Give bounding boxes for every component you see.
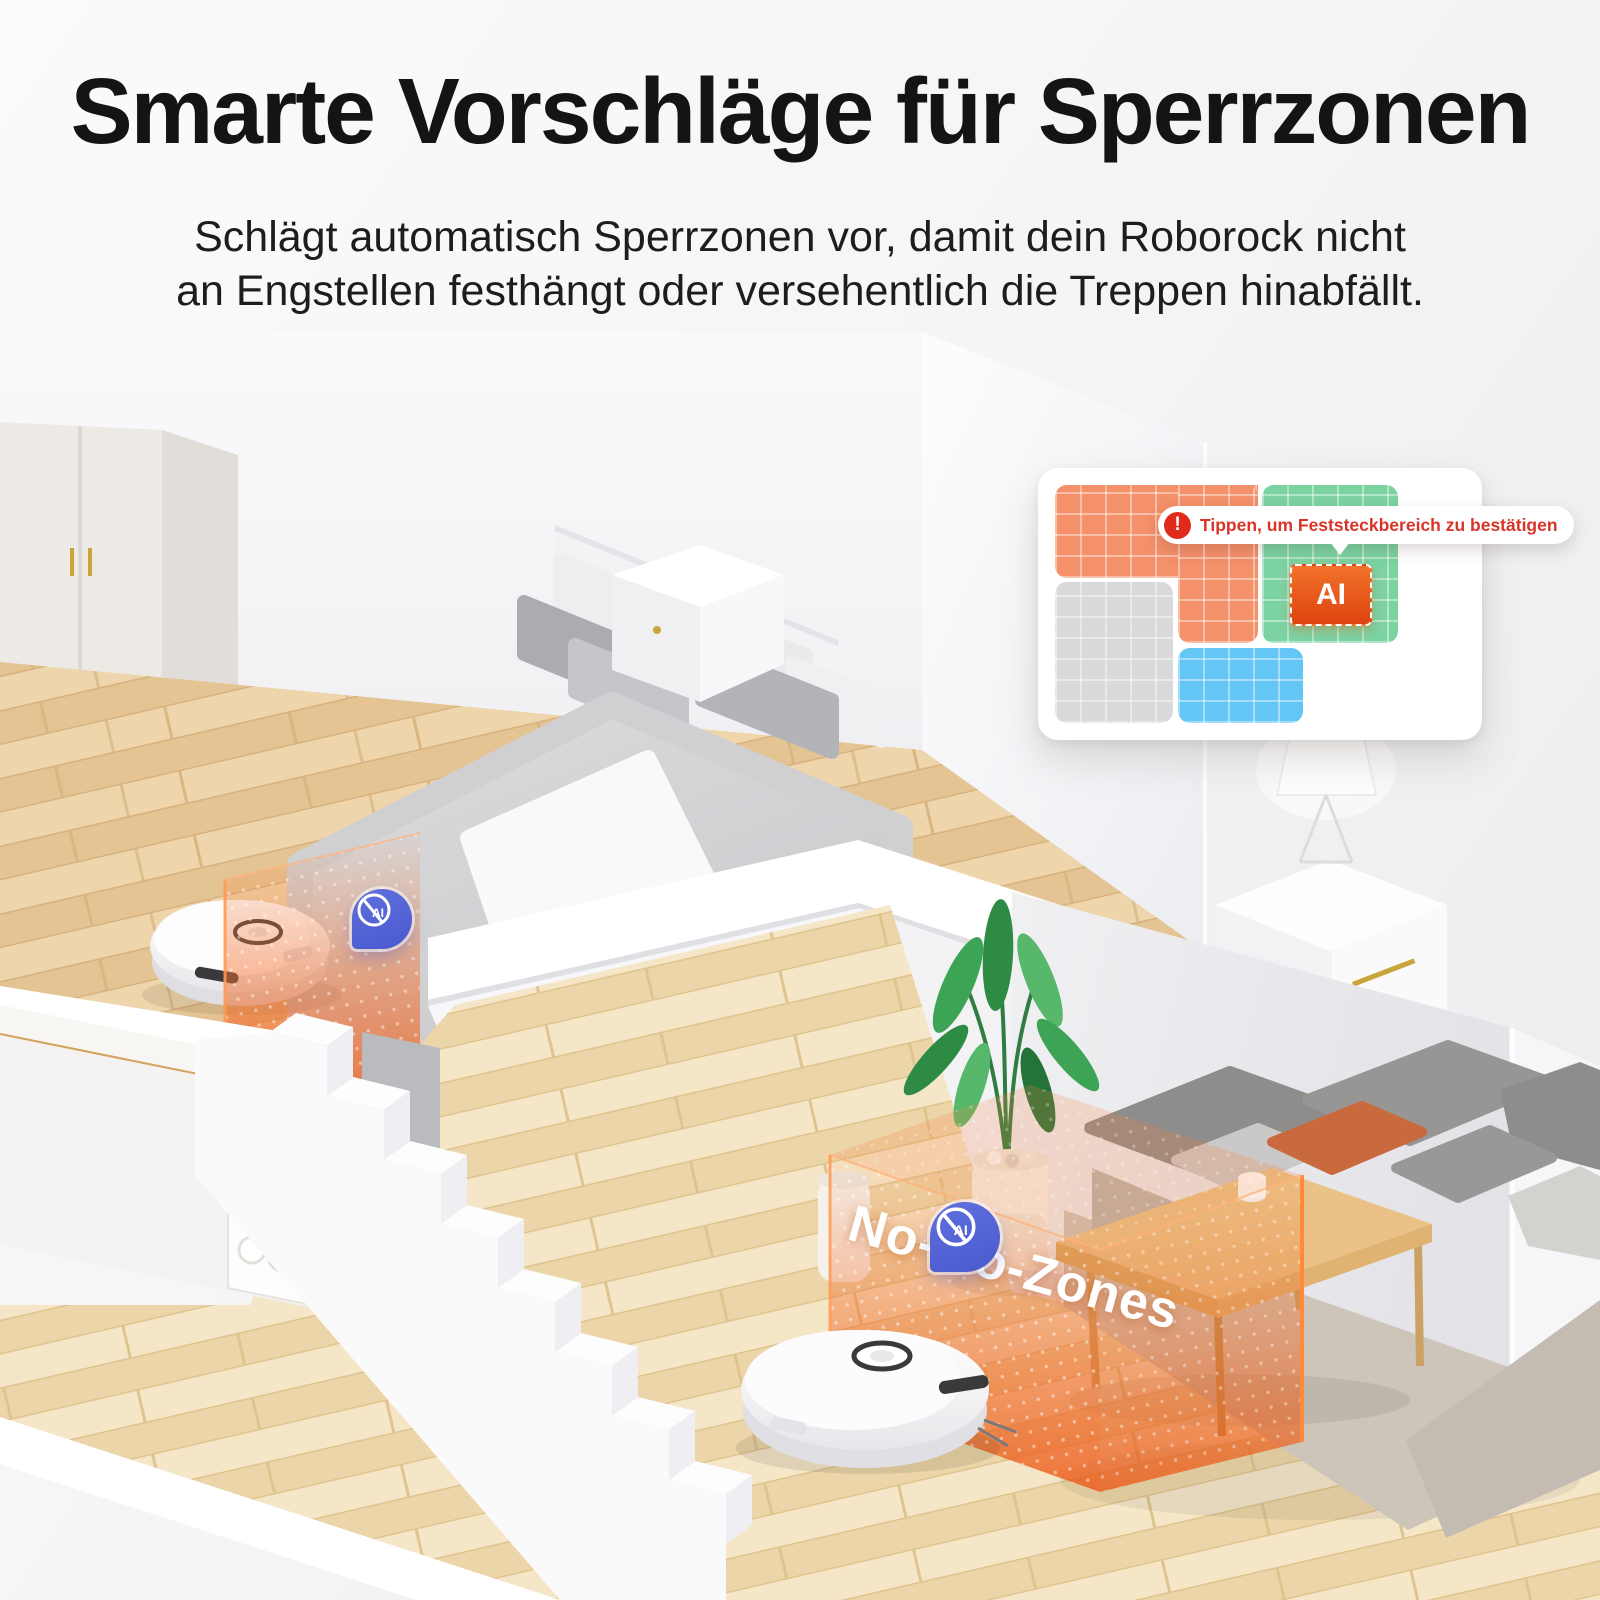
map-ai-zone-button[interactable]: AI: [1290, 564, 1372, 626]
map-zone-gray: [1055, 582, 1173, 723]
page-title: Smarte Vorschläge für Sperrzonen: [0, 58, 1600, 165]
ai-no-go-icon: AI: [352, 889, 396, 933]
stuck-area-tooltip[interactable]: ! Tippen, um Feststeckbereich zu bestäti…: [1158, 506, 1574, 544]
map-suggestion-card: AI ! Tippen, um Feststeckbereich zu best…: [1038, 468, 1482, 740]
svg-text:AI: AI: [372, 906, 384, 920]
tooltip-text: Tippen, um Feststeckbereich zu bestätige…: [1200, 515, 1558, 536]
ai-no-go-icon: AI: [930, 1202, 982, 1254]
ai-pin-upper: AI: [352, 889, 412, 949]
subtitle-line-1: Schlägt automatisch Sperrzonen vor, dami…: [0, 210, 1600, 264]
map-zone-blue: [1178, 648, 1303, 723]
ai-pin-lower: AI: [930, 1202, 1000, 1272]
alert-icon: !: [1164, 512, 1191, 539]
svg-text:AI: AI: [954, 1223, 968, 1239]
subtitle-line-2: an Engstellen festhängt oder versehentli…: [0, 264, 1600, 318]
page-subtitle: Schlägt automatisch Sperrzonen vor, dami…: [0, 210, 1600, 318]
